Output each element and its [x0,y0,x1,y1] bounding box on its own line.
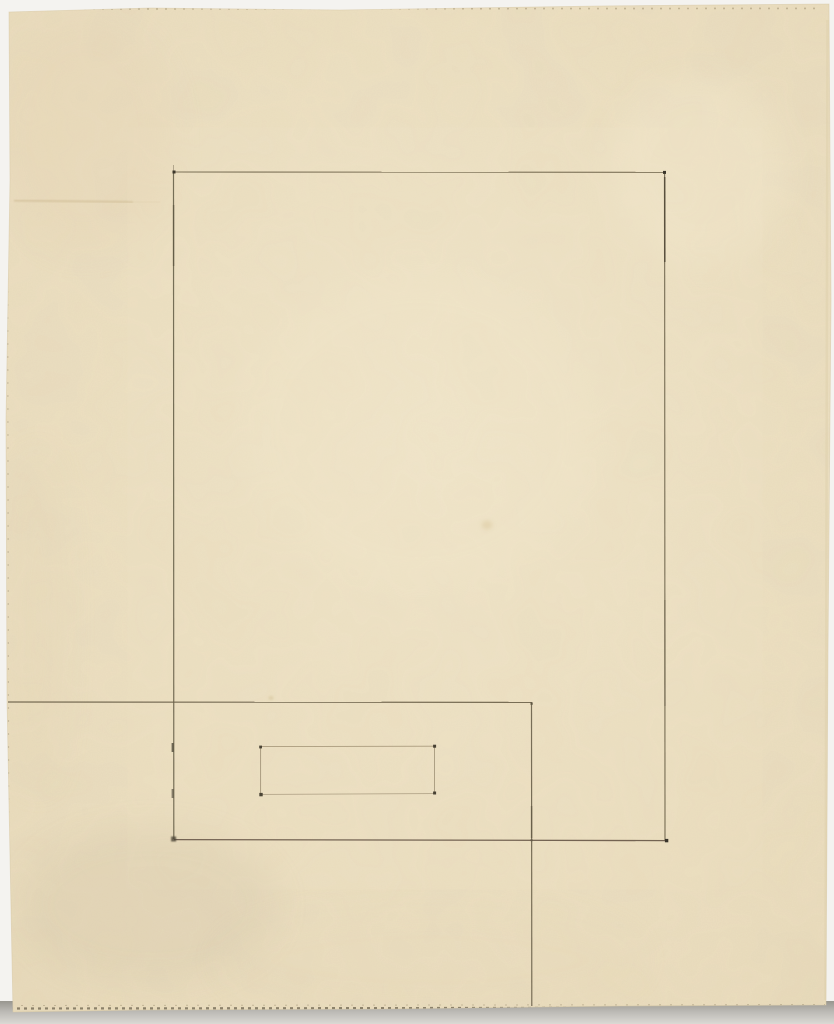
overlap-crossing-dot [531,839,533,841]
paper-light-top-right [610,75,790,265]
large-rect-corner-smudge-bl [171,837,176,842]
small-rect-corner-dot-tr [433,745,436,748]
large-rect-corner-dot-tr [663,171,666,174]
scanned-drawing-photo [0,0,834,1024]
small-rect-corner-dot-tl [259,746,262,749]
paper-wash-top-left [0,20,173,250]
overlap-corner-dot [530,702,532,704]
paper-light-center [240,270,600,590]
large-rect-corner-dot-br [665,839,668,842]
drawing-canvas [0,0,834,1024]
small-rect-corner-dot-bl [259,793,262,796]
paper-stain-small-spot [268,696,273,700]
paper-wash-bottom [220,905,640,1015]
paper-surface [0,0,834,1024]
graphite-smudge-line [14,201,133,203]
small-rect-corner-dot-br [433,792,436,795]
large-rect-corner-dot-tl [173,171,176,174]
paper-wash-left-margin [12,450,64,790]
